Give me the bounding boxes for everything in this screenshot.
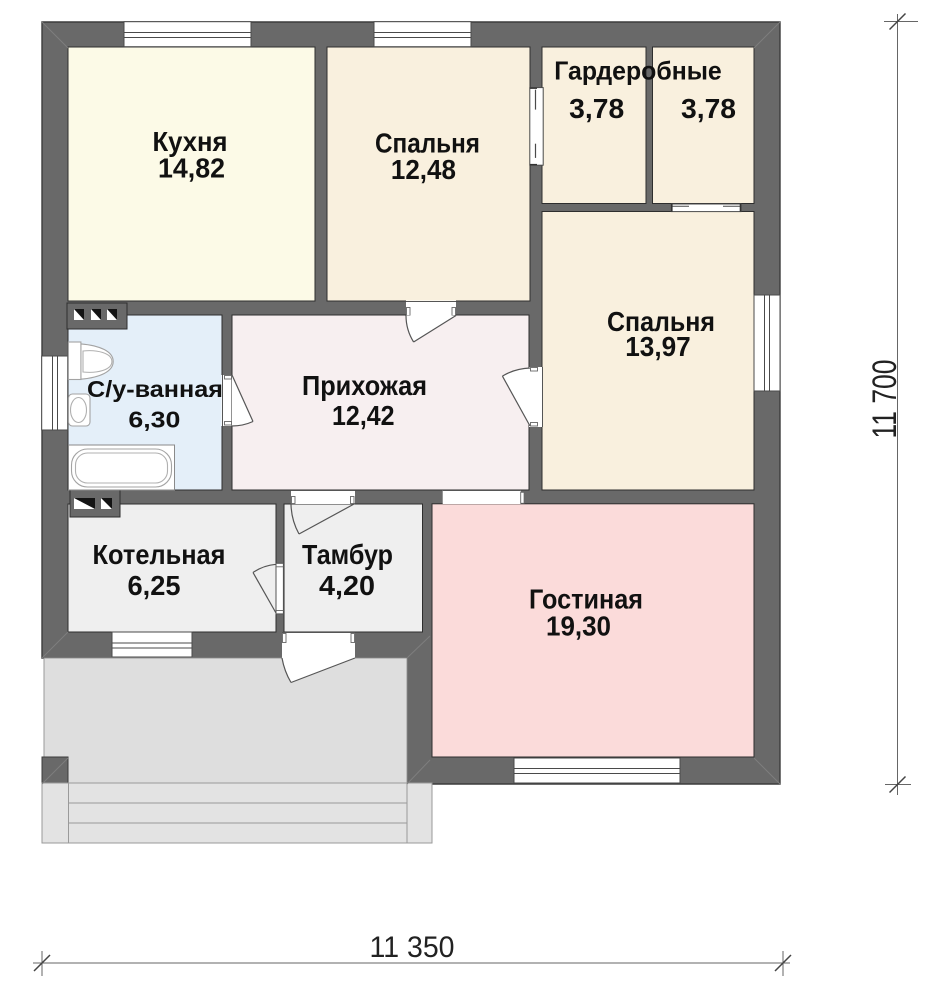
svg-text:6,25: 6,25 [128,570,181,601]
svg-text:19,30: 19,30 [546,611,611,642]
svg-text:Прихожая: Прихожая [302,370,427,401]
svg-text:13,97: 13,97 [625,331,691,362]
svg-text:4,20: 4,20 [319,570,375,601]
svg-text:12,48: 12,48 [391,154,456,185]
svg-text:12,42: 12,42 [332,400,395,431]
svg-text:14,82: 14,82 [158,153,225,184]
svg-text:6,30: 6,30 [128,407,180,433]
svg-text:Гардеробные: Гардеробные [554,56,722,86]
svg-text:11 350: 11 350 [370,931,455,964]
svg-text:Тамбур: Тамбур [302,539,393,570]
svg-text:3,78: 3,78 [569,93,624,124]
svg-text:Котельная: Котельная [93,539,226,570]
svg-text:С/у-ванная: С/у-ванная [87,376,223,402]
svg-text:11 700: 11 700 [866,360,904,439]
svg-text:3,78: 3,78 [681,93,736,124]
